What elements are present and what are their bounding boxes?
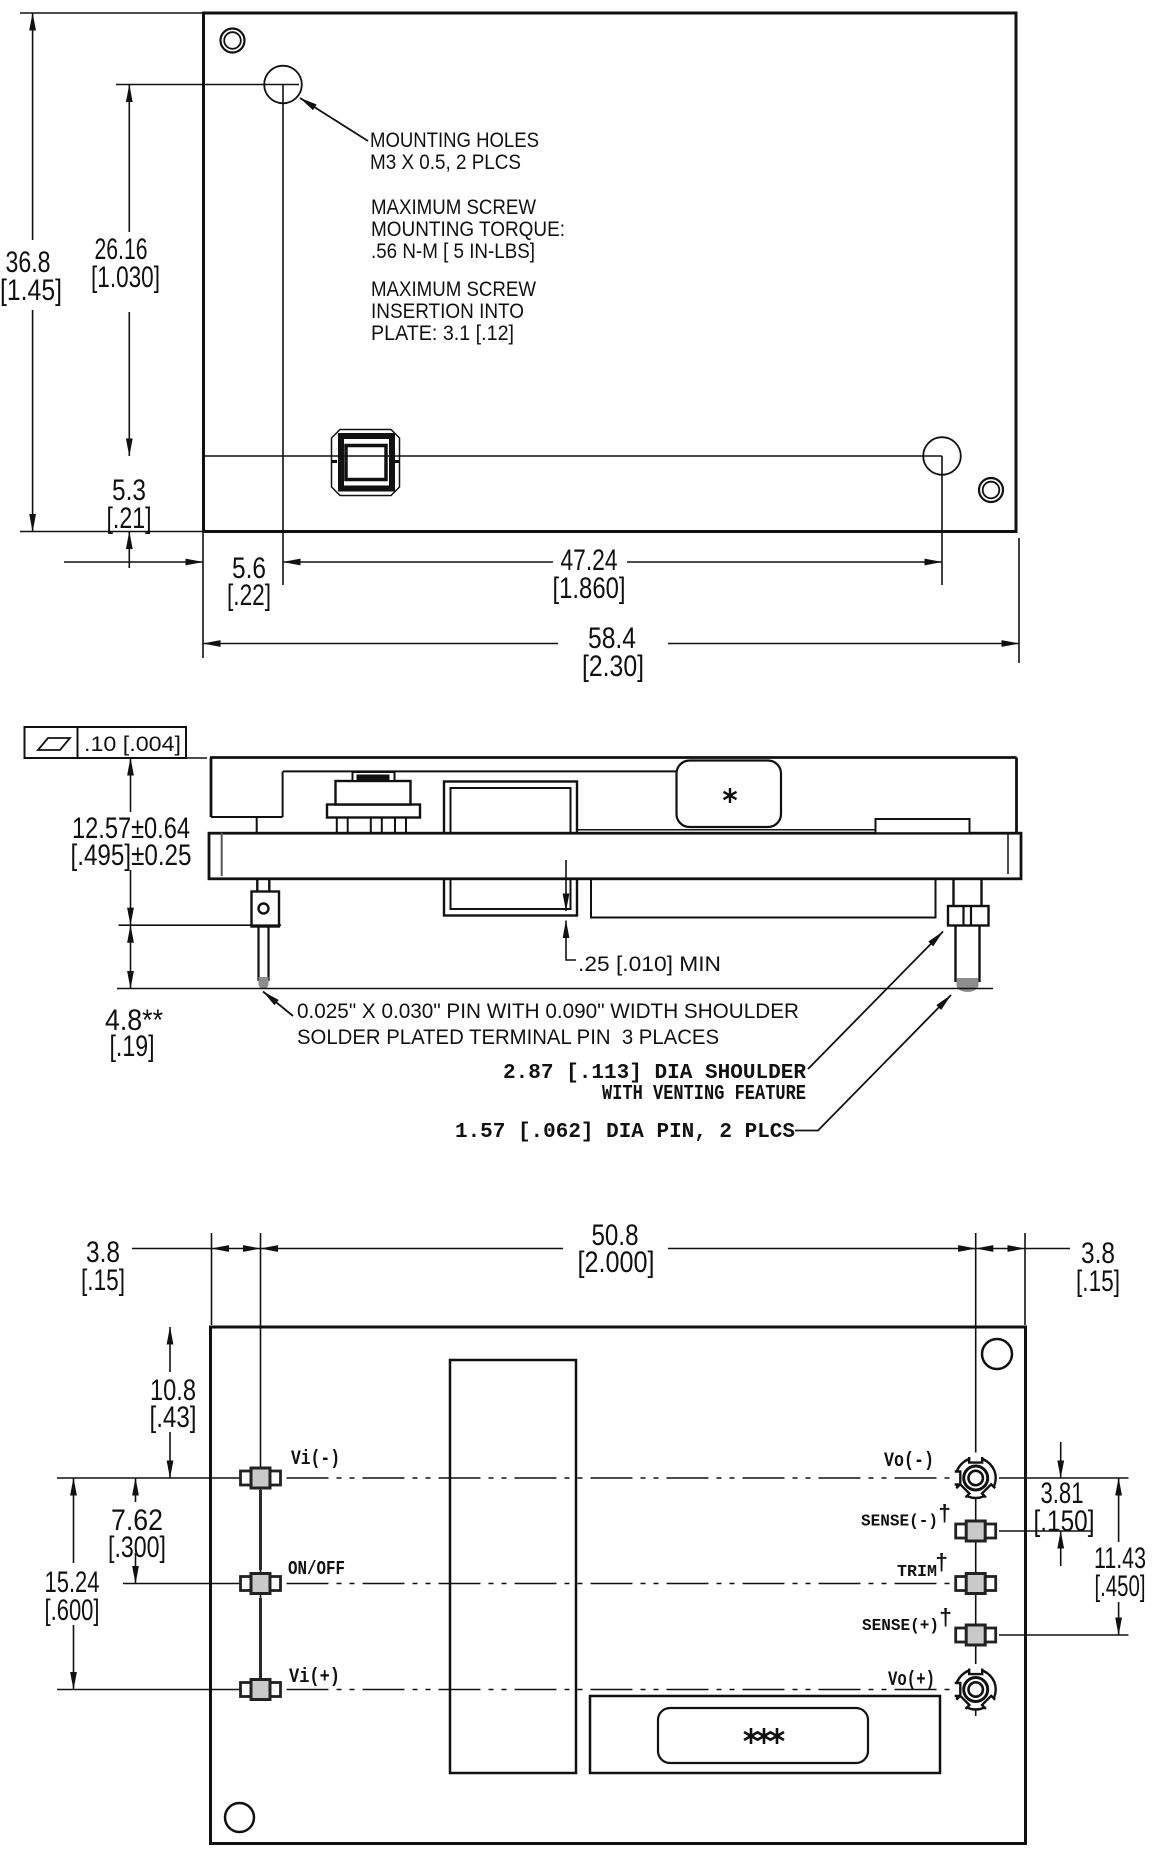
svg-text:WITH VENTING FEATURE: WITH VENTING FEATURE xyxy=(602,1083,806,1106)
svg-text:.25 [.010] MIN: .25 [.010] MIN xyxy=(578,953,721,976)
svg-text:MAXIMUM SCREW: MAXIMUM SCREW xyxy=(371,196,536,219)
svg-text:[.19]: [.19] xyxy=(110,1030,155,1063)
svg-text:[2.000]: [2.000] xyxy=(578,1246,655,1279)
svg-text:MOUNTING HOLES: MOUNTING HOLES xyxy=(370,129,539,152)
svg-text:Vi(+): Vi(+) xyxy=(289,1666,340,1689)
svg-text:Vo(-): Vo(-) xyxy=(884,1450,934,1473)
svg-text:[.450]: [.450] xyxy=(1095,1570,1146,1603)
svg-text:INSERTION INTO: INSERTION INTO xyxy=(371,300,524,323)
svg-text:M3 X 0.5, 2 PLCS: M3 X 0.5, 2 PLCS xyxy=(370,151,521,174)
svg-text:Vi(-): Vi(-) xyxy=(291,1448,340,1471)
svg-text:[.15]: [.15] xyxy=(1076,1265,1120,1298)
svg-text:MOUNTING TORQUE:: MOUNTING TORQUE: xyxy=(371,218,565,241)
svg-text:Vo(+): Vo(+) xyxy=(888,1669,935,1692)
svg-text:†: † xyxy=(939,1606,952,1631)
svg-text:[1.45]: [1.45] xyxy=(0,274,62,307)
svg-text:[2.30]: [2.30] xyxy=(582,650,644,683)
svg-text:[.495]±0.25: [.495]±0.25 xyxy=(71,839,192,872)
svg-text:.56 N-M [ 5 IN-LBS]: .56 N-M [ 5 IN-LBS] xyxy=(371,240,535,263)
svg-text:†: † xyxy=(935,1551,948,1576)
svg-text:PLATE: 3.1 [.12]: PLATE: 3.1 [.12] xyxy=(371,322,514,345)
svg-text:SOLDER PLATED TERMINAL PIN 3: SOLDER PLATED TERMINAL PIN 3 PLACES xyxy=(297,1026,719,1049)
svg-text:TRIM: TRIM xyxy=(897,1563,937,1582)
svg-text:†: † xyxy=(938,1502,951,1527)
svg-text:[.21]: [.21] xyxy=(107,502,152,535)
svg-text:.10 [.004]: .10 [.004] xyxy=(84,733,181,756)
svg-text:[1.860]: [1.860] xyxy=(553,572,626,605)
svg-text:SENSE(-): SENSE(-) xyxy=(861,1513,938,1532)
svg-text:1.57 [.062] DIA PIN, 2 PLCS: 1.57 [.062] DIA PIN, 2 PLCS xyxy=(455,1121,795,1144)
svg-text:0.025" X 0.030" PIN WITH 0.090: 0.025" X 0.030" PIN WITH 0.090" WIDTH SH… xyxy=(297,1000,799,1023)
svg-text:SENSE(+): SENSE(+) xyxy=(862,1617,939,1636)
svg-text:2.87 [.113] DIA SHOULDER: 2.87 [.113] DIA SHOULDER xyxy=(503,1062,806,1085)
svg-text:[.150]: [.150] xyxy=(1034,1505,1095,1538)
svg-text:[.43]: [.43] xyxy=(150,1401,197,1434)
svg-text:[.15]: [.15] xyxy=(81,1264,125,1297)
svg-text:[.300]: [.300] xyxy=(108,1531,166,1564)
svg-text:MAXIMUM SCREW: MAXIMUM SCREW xyxy=(371,278,536,301)
svg-text:ON/OFF: ON/OFF xyxy=(288,1558,345,1580)
svg-text:[.22]: [.22] xyxy=(227,579,271,612)
svg-text:[1.030]: [1.030] xyxy=(91,261,160,294)
svg-text:[.600]: [.600] xyxy=(45,1594,100,1627)
